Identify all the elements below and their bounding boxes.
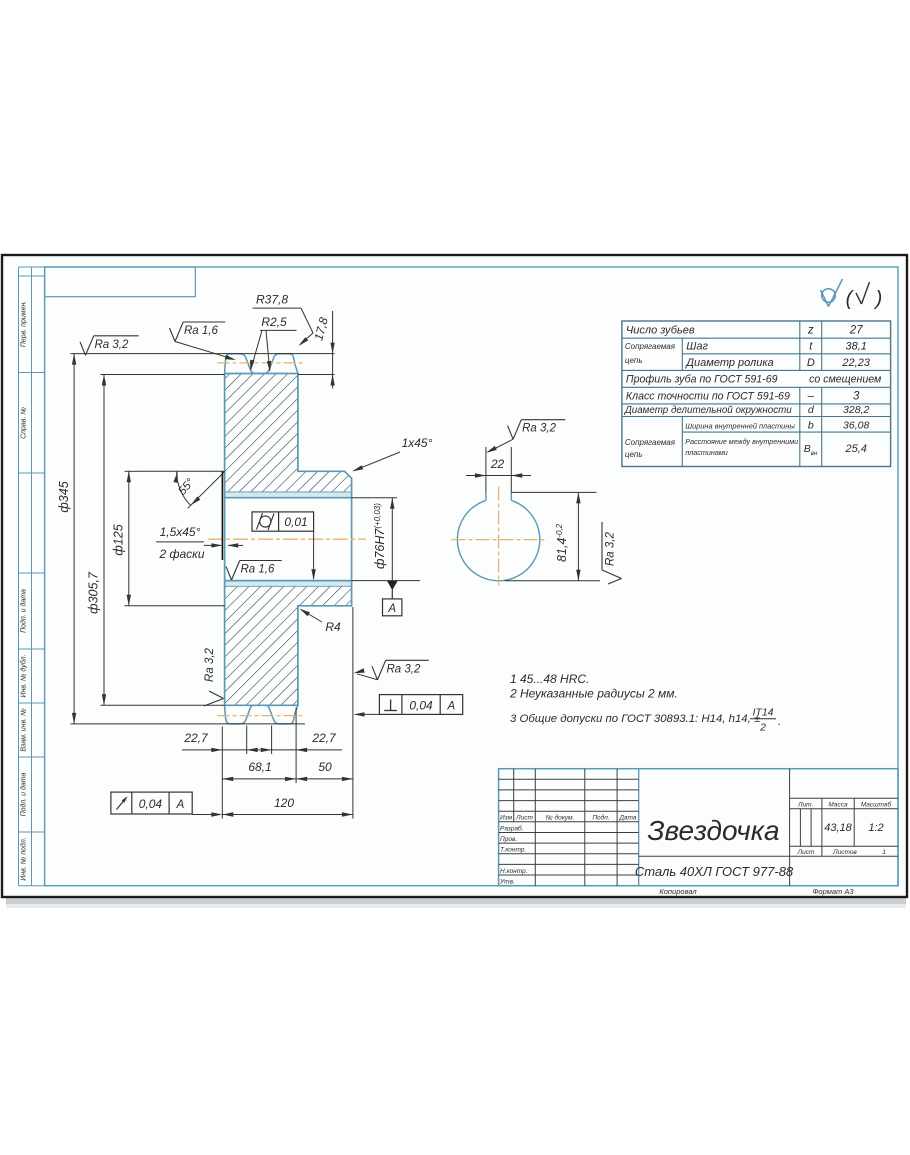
svg-text:Формат А3: Формат А3 bbox=[812, 887, 854, 896]
svg-text:38,1: 38,1 bbox=[845, 341, 866, 353]
svg-text:А: А bbox=[446, 701, 455, 713]
svg-text:27: 27 bbox=[849, 325, 863, 337]
svg-text:2 фаски: 2 фаски bbox=[158, 547, 204, 561]
svg-text:Справ. №: Справ. № bbox=[21, 407, 28, 439]
svg-text:2 Неуказанные радиусы 2 мм.: 2 Неуказанные радиусы 2 мм. bbox=[509, 687, 678, 701]
svg-text:Ra 3,2: Ra 3,2 bbox=[95, 339, 129, 351]
svg-text:25,4: 25,4 bbox=[844, 443, 866, 455]
svg-text:ф345: ф345 bbox=[57, 481, 71, 512]
svg-text:Подп. и дата: Подп. и дата bbox=[20, 589, 28, 633]
svg-text:3 Общие допуски по ГОСТ 30893.: 3 Общие допуски по ГОСТ 30893.1: Н14, h1… bbox=[510, 713, 760, 725]
svg-text:b: b bbox=[808, 420, 814, 432]
svg-text:№ докум.: № докум. bbox=[546, 813, 575, 821]
svg-text:R2,5: R2,5 bbox=[261, 315, 287, 329]
svg-text:0,04: 0,04 bbox=[409, 699, 433, 713]
svg-text:2: 2 bbox=[759, 722, 766, 734]
svg-text:Сопрягаемая: Сопрягаемая bbox=[625, 438, 676, 447]
svg-text:Ra 1,6: Ra 1,6 bbox=[184, 325, 218, 337]
svg-text:1,5х45°: 1,5х45° bbox=[160, 525, 201, 539]
svg-text:Подп.: Подп. bbox=[592, 813, 609, 821]
svg-text:Расстояние между внутренними: Расстояние между внутренними bbox=[685, 437, 798, 446]
svg-text:Разраб.: Разраб. bbox=[500, 824, 524, 832]
svg-text:Диаметр делительной окружности: Диаметр делительной окружности bbox=[624, 405, 792, 416]
svg-text:43,18: 43,18 bbox=[824, 822, 852, 834]
svg-text:22,7: 22,7 bbox=[311, 731, 337, 745]
svg-text:Профиль зуба по ГОСТ 591-69: Профиль зуба по ГОСТ 591-69 bbox=[626, 374, 778, 386]
svg-text:пластинами: пластинами bbox=[685, 448, 727, 457]
svg-text:ф125: ф125 bbox=[112, 524, 126, 555]
svg-text:Масса: Масса bbox=[828, 802, 848, 809]
svg-text:1х45°: 1х45° bbox=[402, 436, 433, 450]
svg-text:22: 22 bbox=[490, 457, 505, 471]
svg-text:R37,8: R37,8 bbox=[256, 293, 288, 307]
svg-text:Н.контр.: Н.контр. bbox=[500, 868, 528, 875]
svg-text:): ) bbox=[874, 288, 883, 310]
svg-text:Лист: Лист bbox=[515, 814, 533, 821]
svg-text:со смещением: со смещением bbox=[809, 374, 882, 386]
svg-text:Взам. инв. №: Взам. инв. № bbox=[21, 708, 28, 752]
svg-text:z: z bbox=[807, 325, 814, 337]
svg-text:Дата: Дата bbox=[618, 814, 637, 821]
svg-text:Ra 3,2: Ra 3,2 bbox=[387, 663, 421, 675]
svg-text:Число зубьев: Число зубьев bbox=[626, 325, 695, 337]
svg-text:–: – bbox=[807, 391, 815, 403]
svg-text:Звездочка: Звездочка bbox=[647, 815, 779, 846]
svg-text:Диаметр ролика: Диаметр ролика bbox=[684, 357, 773, 369]
svg-text:Ra 3,2: Ra 3,2 bbox=[605, 532, 617, 566]
svg-text:0,01: 0,01 bbox=[284, 515, 307, 529]
svg-text:Утв.: Утв. bbox=[499, 878, 515, 885]
svg-text:.: . bbox=[778, 714, 781, 728]
svg-text:вн: вн bbox=[811, 451, 818, 457]
svg-text:цепь: цепь bbox=[625, 356, 643, 365]
svg-text:Т.контр.: Т.контр. bbox=[500, 847, 526, 854]
svg-text:0,04: 0,04 bbox=[139, 797, 163, 811]
svg-text:Сопрягаемая: Сопрягаемая bbox=[625, 342, 676, 351]
svg-text:Копировал: Копировал bbox=[659, 887, 697, 896]
svg-text:50: 50 bbox=[318, 760, 332, 774]
svg-text:А: А bbox=[387, 603, 396, 615]
svg-text:D: D bbox=[807, 357, 815, 369]
svg-text:Шаг: Шаг bbox=[686, 341, 708, 353]
svg-text:IT14: IT14 bbox=[752, 707, 773, 719]
svg-text:1: 1 bbox=[882, 849, 886, 856]
svg-text:Лит.: Лит. bbox=[797, 802, 813, 809]
svg-text:Изм: Изм bbox=[500, 814, 513, 821]
svg-text:Листов: Листов bbox=[832, 849, 857, 856]
svg-text:Ширина внутренней пластины: Ширина внутренней пластины bbox=[685, 422, 795, 431]
svg-text:328,2: 328,2 bbox=[843, 404, 869, 416]
svg-text:R4: R4 bbox=[325, 620, 341, 634]
svg-text:120: 120 bbox=[274, 796, 294, 810]
svg-text:Лист: Лист bbox=[797, 849, 815, 856]
svg-text:Ra 3,2: Ra 3,2 bbox=[522, 423, 556, 435]
svg-text:22,7: 22,7 bbox=[183, 731, 209, 745]
svg-text:Инв. № дубл.: Инв. № дубл. bbox=[20, 654, 28, 697]
svg-text:B: B bbox=[804, 443, 811, 455]
svg-text:22,23: 22,23 bbox=[841, 357, 870, 369]
svg-text:36,08: 36,08 bbox=[843, 420, 869, 432]
svg-text:Перв. примен.: Перв. примен. bbox=[21, 301, 28, 348]
svg-text:цепь: цепь bbox=[625, 450, 643, 459]
svg-text:Ra 1,6: Ra 1,6 bbox=[241, 564, 275, 576]
svg-text:1 45...48 HRC.: 1 45...48 HRC. bbox=[510, 672, 589, 686]
svg-text:3: 3 bbox=[853, 391, 860, 403]
svg-text:Инв. № подл.: Инв. № подл. bbox=[20, 837, 28, 880]
svg-text:Масштаб: Масштаб bbox=[861, 801, 892, 809]
svg-text:1:2: 1:2 bbox=[868, 822, 883, 834]
svg-text:А: А bbox=[176, 799, 185, 811]
svg-text:Пров.: Пров. bbox=[500, 836, 517, 843]
svg-text:Подп. и дата: Подп. и дата bbox=[20, 772, 28, 816]
svg-text:Сталь 40ХЛ ГОСТ 977-88: Сталь 40ХЛ ГОСТ 977-88 bbox=[635, 864, 794, 879]
svg-text:Ra 3,2: Ra 3,2 bbox=[204, 647, 216, 681]
svg-text:ф305,7: ф305,7 bbox=[87, 571, 101, 614]
svg-text:68,1: 68,1 bbox=[248, 760, 271, 774]
svg-text:Класс точности по ГОСТ 591-69: Класс точности по ГОСТ 591-69 bbox=[626, 391, 790, 403]
